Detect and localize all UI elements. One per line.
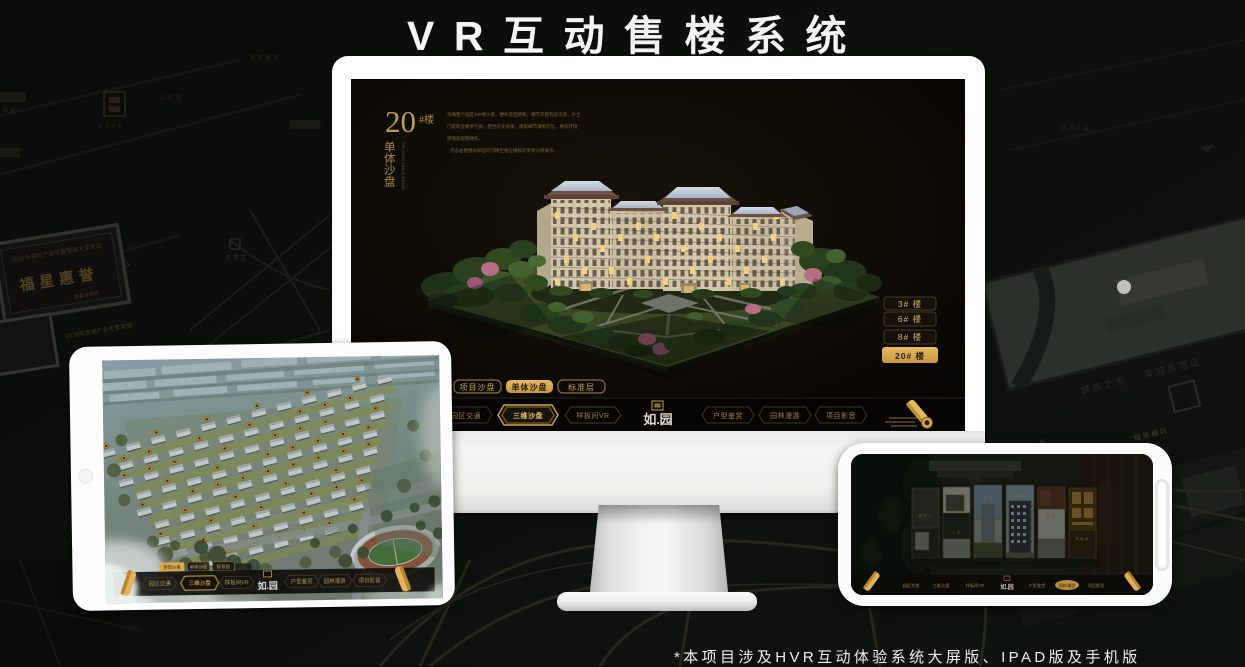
svg-text:滨 河 大 道: 滨 河 大 道 xyxy=(1060,124,1089,132)
svg-text:样板间VR: 样板间VR xyxy=(966,582,984,589)
svg-text:项目沙盘: 项目沙盘 xyxy=(460,382,496,392)
svg-text:转缩放观察楼栋。: 转缩放观察楼栋。 xyxy=(447,135,483,142)
svg-text:单体沙盘: 单体沙盘 xyxy=(512,382,548,392)
svg-text:福 地: 福 地 xyxy=(2,106,16,114)
svg-text:8# 楼: 8# 楼 xyxy=(898,332,922,342)
svg-text:园区交通: 园区交通 xyxy=(451,411,481,420)
svg-text:三维沙盘: 三维沙盘 xyxy=(513,411,543,420)
svg-text:THE SAND TABLE MODEL: THE SAND TABLE MODEL xyxy=(401,141,405,191)
svg-text:体: 体 xyxy=(384,152,396,166)
svg-text:20: 20 xyxy=(385,104,416,139)
svg-text:三维沙盘: 三维沙盘 xyxy=(933,582,950,589)
svg-text:样板间VR: 样板间VR xyxy=(576,411,609,420)
svg-text:鸟瞰整个园区20#楼沙盘，楼体造型精致，细节丰富有层次感，外: 鸟瞰整个园区20#楼沙盘，楼体造型精致，细节丰富有层次感，外立 xyxy=(447,111,581,118)
svg-text:九 鼎 世 家: 九 鼎 世 家 xyxy=(98,123,122,130)
svg-text:中 央 路: 中 央 路 xyxy=(160,94,181,102)
svg-text:3# 楼: 3# 楼 xyxy=(898,299,922,309)
svg-text:园林漫游: 园林漫游 xyxy=(1059,582,1077,589)
svg-text:6# 楼: 6# 楼 xyxy=(898,314,922,324)
svg-text:门庭彰显尊崇气质，配合灯光效果，建筑细节清晰可见，楼栋环境: 门庭彰显尊崇气质，配合灯光效果，建筑细节清晰可见，楼栋环境 xyxy=(447,123,578,130)
svg-text:户型鉴赏: 户型鉴赏 xyxy=(713,411,743,420)
svg-text:如.园: 如.园 xyxy=(258,580,278,591)
svg-text:标准层: 标准层 xyxy=(568,382,595,392)
svg-text:如.园: 如.园 xyxy=(1000,583,1014,591)
svg-text:如.园: 如.园 xyxy=(643,412,672,427)
svg-text:20# 楼: 20# 楼 xyxy=(895,351,925,361)
svg-text:项目影音: 项目影音 xyxy=(826,411,856,420)
svg-text:园林漫游: 园林漫游 xyxy=(770,411,800,420)
svg-text:单: 单 xyxy=(384,141,396,154)
svg-text:园区交通: 园区交通 xyxy=(903,582,921,589)
svg-text:#楼: #楼 xyxy=(419,113,434,126)
svg-text:户型鉴赏: 户型鉴赏 xyxy=(1029,582,1046,589)
svg-text:盘: 盘 xyxy=(384,175,396,189)
svg-text:›: › xyxy=(126,257,130,271)
svg-text:沙: 沙 xyxy=(384,164,396,177)
svg-text:点击右侧楼栋按钮可切换至相应楼栋的单体沙盘展示。: 点击右侧楼栋按钮可切换至相应楼栋的单体沙盘展示。 xyxy=(450,147,558,154)
svg-text:示 范 区: 示 范 区 xyxy=(225,254,246,262)
svg-text:项目影音: 项目影音 xyxy=(1088,582,1105,589)
